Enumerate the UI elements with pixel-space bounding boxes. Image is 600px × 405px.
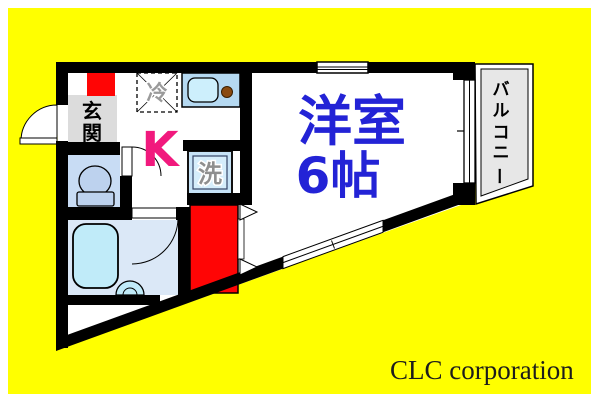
kitchen-room-wall bbox=[240, 62, 252, 205]
stove-burner-icon bbox=[222, 87, 233, 98]
western-room-label: 洋室 bbox=[298, 90, 406, 153]
left-wall-upper bbox=[56, 62, 68, 105]
floorplan-drawing: 玄 関 冷 K 洗 洋室 6帖 バ ル コ ニ ー CLC corporatio… bbox=[0, 0, 600, 405]
top-wall bbox=[56, 62, 475, 73]
balcony-label-char3: コ bbox=[493, 123, 510, 143]
western-room-size-label: 6帖 bbox=[296, 147, 381, 205]
counter-washer-wall bbox=[183, 140, 240, 151]
kitchen-sink bbox=[188, 78, 218, 102]
bath-bottom-wall bbox=[56, 295, 160, 305]
kitchen-label: K bbox=[141, 122, 180, 178]
toilet-bath-wall bbox=[56, 207, 132, 220]
brand-text: CLC corporation bbox=[390, 355, 574, 385]
bath-right-wall bbox=[178, 207, 190, 295]
toilet-tank bbox=[77, 192, 114, 206]
refrigerator-label: 冷 bbox=[147, 81, 168, 105]
shoe-cabinet-highlight bbox=[87, 73, 115, 96]
entrance-label-char1: 玄 bbox=[82, 99, 102, 123]
balcony-label-char4: ニ bbox=[493, 143, 510, 163]
window-top bbox=[317, 62, 368, 73]
balcony-label-char2: ル bbox=[493, 101, 510, 121]
washer-closet-wall bbox=[187, 193, 243, 205]
floorplan-page: 玄 関 冷 K 洗 洋室 6帖 バ ル コ ニ ー CLC corporatio… bbox=[0, 0, 600, 405]
bathtub bbox=[73, 224, 118, 288]
left-wall-lower bbox=[56, 141, 68, 348]
balcony-label-char1: バ bbox=[493, 80, 510, 100]
right-wall-top-block bbox=[453, 62, 475, 80]
balcony-label-char5: ー bbox=[488, 168, 508, 185]
closet-door-strip bbox=[238, 219, 244, 259]
washing-machine-label: 洗 bbox=[198, 160, 222, 188]
entrance-label-char2: 関 bbox=[82, 121, 102, 145]
